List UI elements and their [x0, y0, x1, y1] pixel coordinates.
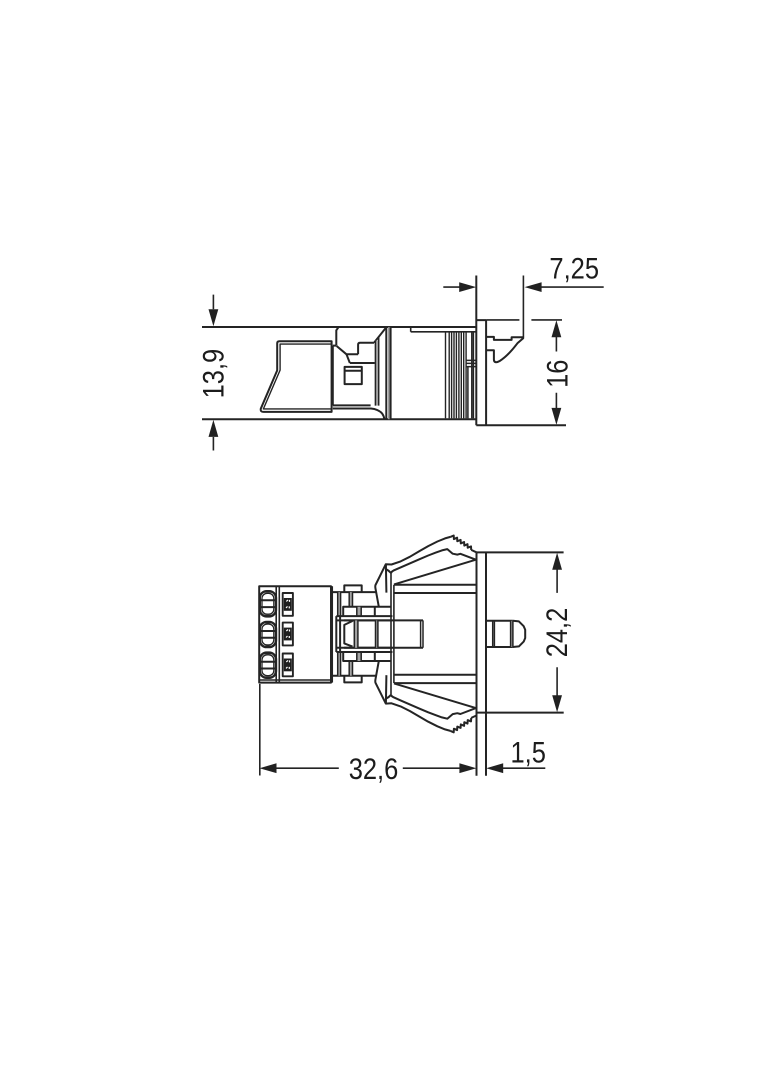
svg-text:13,9: 13,9	[197, 349, 230, 399]
svg-text:16: 16	[541, 360, 574, 388]
svg-text:24,2: 24,2	[540, 608, 573, 658]
svg-text:32,6: 32,6	[349, 752, 399, 785]
svg-text:7,25: 7,25	[549, 252, 599, 285]
svg-text:1,5: 1,5	[510, 736, 545, 769]
